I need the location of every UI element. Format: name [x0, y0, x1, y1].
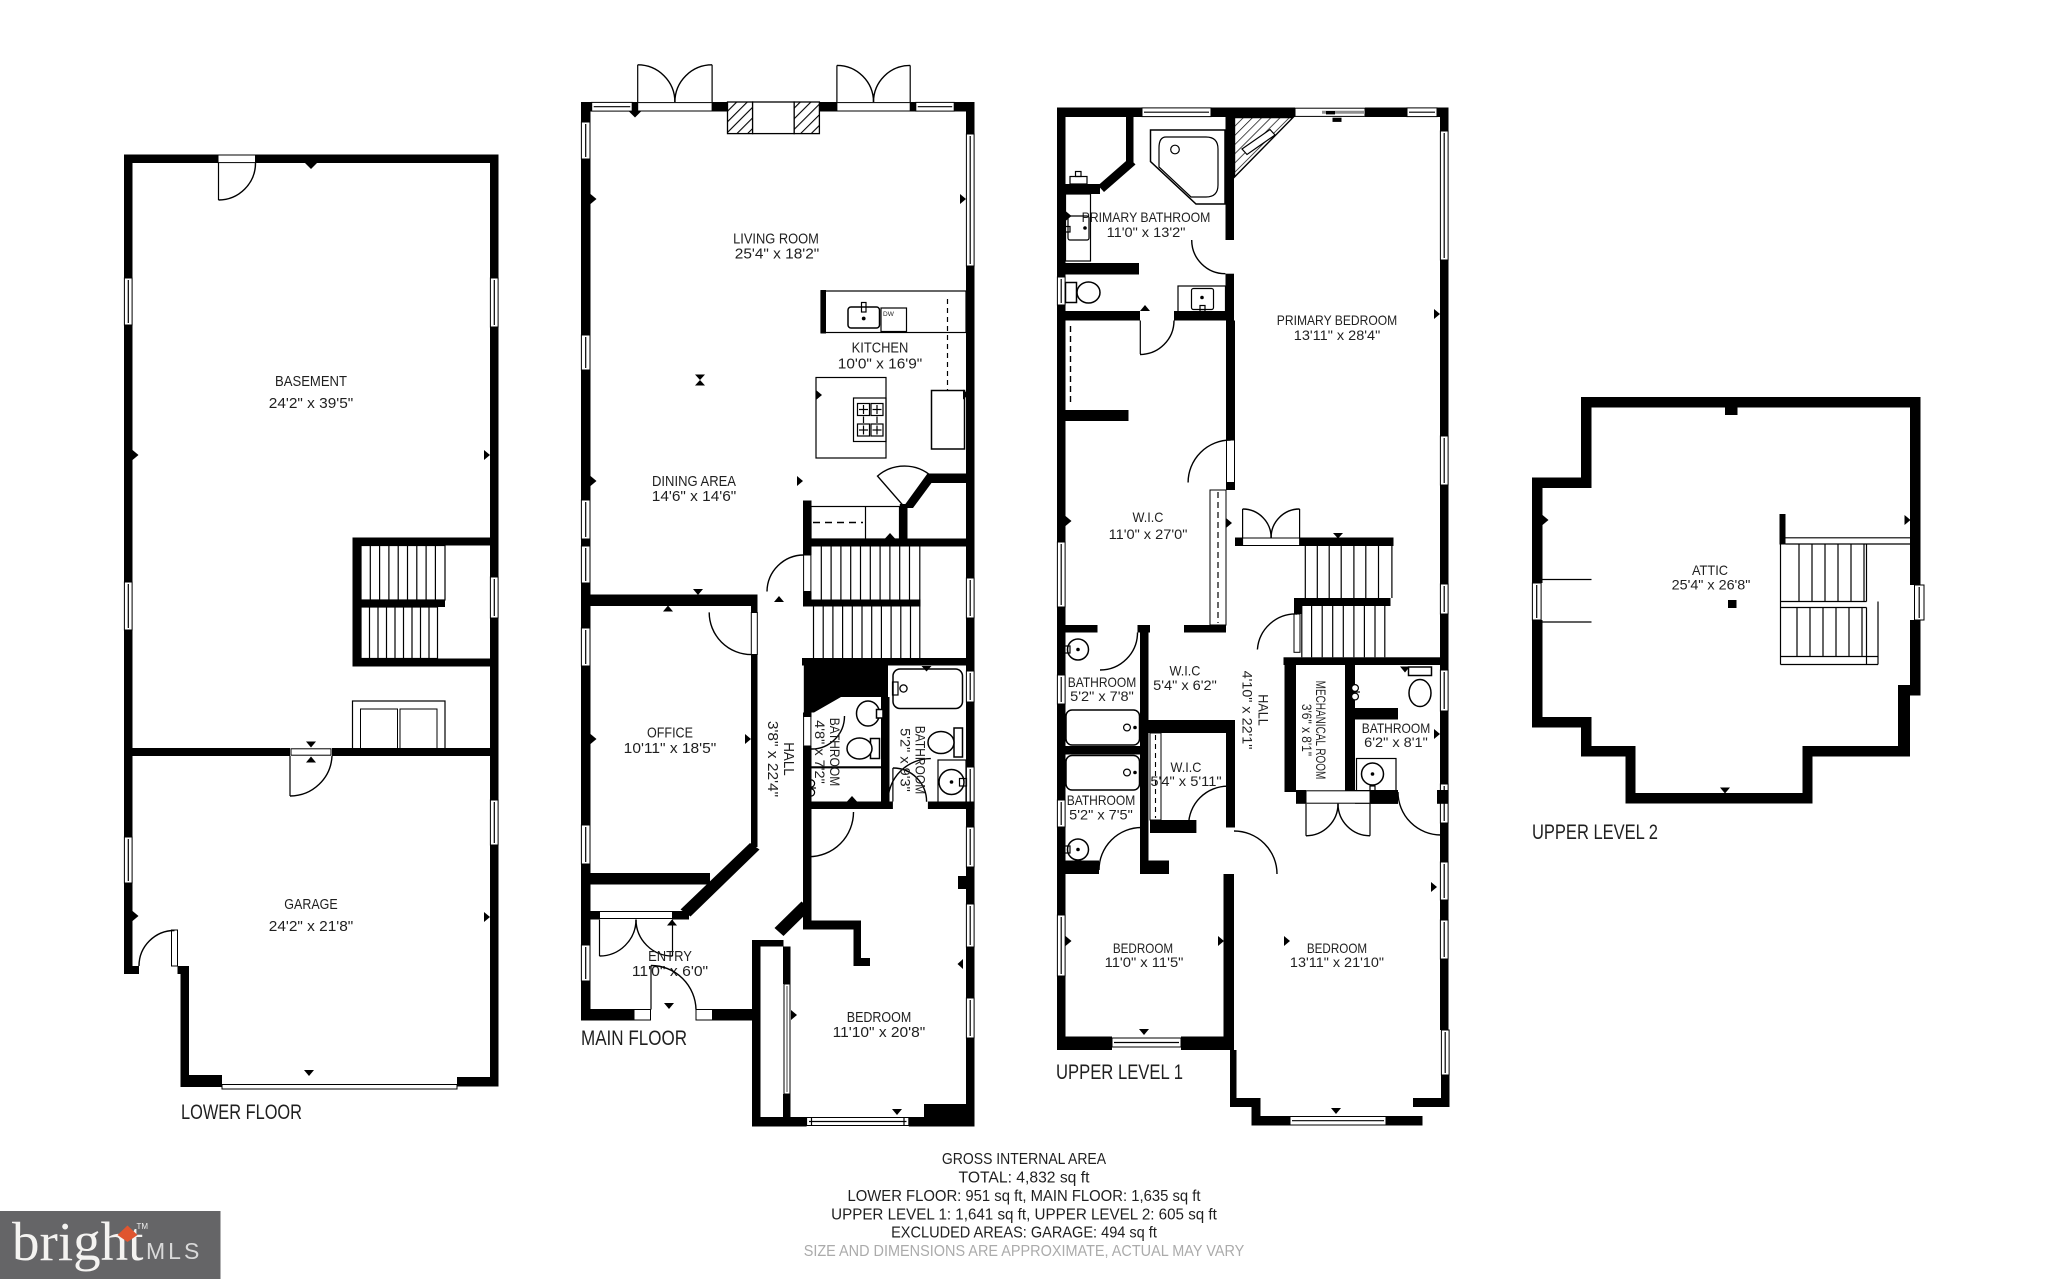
svg-text:OFFICE: OFFICE — [647, 725, 693, 742]
svg-text:GROSS INTERNAL AREA: GROSS INTERNAL AREA — [942, 1151, 1106, 1168]
svg-text:KITCHEN: KITCHEN — [852, 340, 909, 357]
svg-text:10'0" x 16'9": 10'0" x 16'9" — [838, 356, 923, 373]
svg-text:W.I.C: W.I.C — [1133, 509, 1164, 525]
svg-text:6'2" x 8'1": 6'2" x 8'1" — [1364, 734, 1428, 750]
svg-text:4'10" x 22'1": 4'10" x 22'1" — [1240, 671, 1256, 750]
svg-text:UPPER LEVEL 1: 1,641 sq ft, UP: UPPER LEVEL 1: 1,641 sq ft, UPPER LEVEL … — [831, 1206, 1217, 1223]
svg-text:LOWER FLOOR: LOWER FLOOR — [181, 1101, 302, 1124]
svg-text:TOTAL: 4,832 sq ft: TOTAL: 4,832 sq ft — [959, 1170, 1090, 1187]
svg-text:25'4" x 18'2": 25'4" x 18'2" — [735, 246, 820, 263]
svg-text:5'4" x 6'2": 5'4" x 6'2" — [1153, 677, 1217, 693]
svg-text:DW: DW — [883, 311, 895, 318]
svg-text:BATHROOM: BATHROOM — [827, 718, 843, 787]
svg-text:MAIN FLOOR: MAIN FLOOR — [581, 1027, 687, 1050]
svg-text:11'0" x 6'0": 11'0" x 6'0" — [632, 963, 708, 980]
svg-text:TM: TM — [137, 1222, 149, 1231]
svg-text:BATHROOM: BATHROOM — [913, 726, 929, 795]
svg-text:HALL: HALL — [780, 742, 797, 776]
svg-text:EXCLUDED AREAS: GARAGE: 494 sq: EXCLUDED AREAS: GARAGE: 494 sq ft — [891, 1225, 1157, 1242]
svg-text:3'8" x 22'4": 3'8" x 22'4" — [764, 721, 781, 797]
svg-text:24'2" x 39'5": 24'2" x 39'5" — [269, 395, 354, 412]
svg-text:HALL: HALL — [1256, 694, 1272, 726]
svg-text:UPPER LEVEL 2: UPPER LEVEL 2 — [1532, 821, 1658, 844]
svg-text:UPPER LEVEL 1: UPPER LEVEL 1 — [1056, 1061, 1183, 1084]
svg-text:4'8" x 7'2": 4'8" x 7'2" — [812, 720, 828, 784]
svg-text:10'11" x 18'5": 10'11" x 18'5" — [624, 740, 717, 757]
svg-text:11'0" x 13'2": 11'0" x 13'2" — [1107, 224, 1186, 240]
svg-text:11'0" x 27'0": 11'0" x 27'0" — [1109, 526, 1188, 542]
svg-text:PRIMARY BATHROOM: PRIMARY BATHROOM — [1082, 209, 1211, 225]
svg-text:24'2" x 21'8": 24'2" x 21'8" — [269, 918, 354, 935]
svg-text:PRIMARY BEDROOM: PRIMARY BEDROOM — [1277, 312, 1397, 328]
svg-text:25'4" x 26'8": 25'4" x 26'8" — [1672, 577, 1751, 593]
svg-text:5'2" x 9'3": 5'2" x 9'3" — [898, 728, 914, 792]
svg-text:5'2" x 7'8": 5'2" x 7'8" — [1070, 688, 1134, 704]
svg-text:GARAGE: GARAGE — [284, 896, 337, 913]
svg-text:BASEMENT: BASEMENT — [275, 373, 347, 390]
svg-text:MLS: MLS — [146, 1238, 202, 1264]
svg-text:bright: bright — [12, 1211, 143, 1272]
svg-text:13'11" x 21'10": 13'11" x 21'10" — [1290, 954, 1384, 970]
svg-text:LOWER FLOOR: 951 sq ft, MAIN F: LOWER FLOOR: 951 sq ft, MAIN FLOOR: 1,63… — [848, 1188, 1202, 1205]
svg-text:14'6" x 14'6": 14'6" x 14'6" — [652, 488, 737, 505]
svg-text:11'0" x 11'5": 11'0" x 11'5" — [1105, 954, 1184, 970]
svg-text:5'2" x 7'5": 5'2" x 7'5" — [1069, 807, 1133, 823]
svg-text:5'4" x 5'11": 5'4" x 5'11" — [1150, 773, 1221, 789]
svg-text:13'11" x 28'4": 13'11" x 28'4" — [1294, 327, 1381, 343]
svg-text:SIZE AND DIMENSIONS ARE APPROX: SIZE AND DIMENSIONS ARE APPROXIMATE, ACT… — [804, 1243, 1245, 1260]
svg-text:11'10" x 20'8": 11'10" x 20'8" — [833, 1024, 926, 1041]
svg-text:3'6" x 8'1": 3'6" x 8'1" — [1299, 704, 1315, 756]
